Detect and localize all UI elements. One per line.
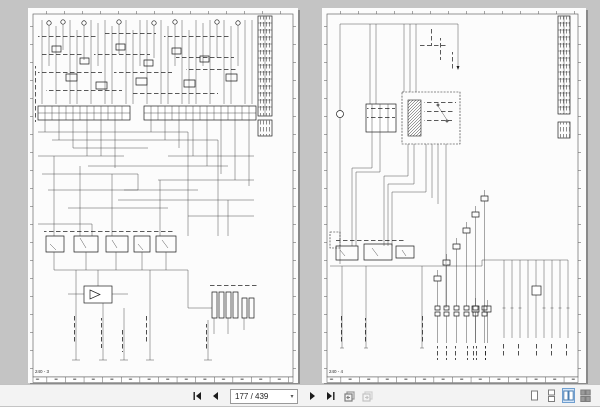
- first-page-button[interactable]: [190, 388, 204, 404]
- next-page-button[interactable]: [306, 388, 320, 404]
- zone-ruler: [327, 377, 578, 383]
- last-page-icon: [325, 390, 337, 402]
- view-mode-facing-continuous[interactable]: [579, 388, 592, 403]
- previous-page-icon: [209, 390, 221, 402]
- title-block: [258, 16, 272, 136]
- right-schematic: 240 - 4: [322, 8, 586, 383]
- relay-row: [44, 230, 176, 252]
- terminal-strip: [38, 106, 256, 120]
- view-mode-continuous[interactable]: [545, 388, 558, 403]
- fuse-staircase: [434, 190, 488, 360]
- page-layout-switcher: [528, 388, 592, 403]
- title-block: [558, 16, 570, 138]
- last-page-button[interactable]: [324, 388, 338, 404]
- zone-ruler: [33, 377, 293, 383]
- previous-view-button[interactable]: [342, 388, 356, 404]
- viewer-toolbar: ▾: [0, 384, 600, 406]
- pdf-page-right: 240 - 4: [322, 8, 586, 383]
- single-page-icon: [529, 389, 540, 402]
- view-mode-facing[interactable]: [562, 388, 575, 403]
- next-view-icon: [361, 390, 374, 403]
- right-drop-group: [502, 260, 570, 358]
- sheet-number-left: 240 - 3: [35, 369, 50, 374]
- next-page-icon: [307, 390, 319, 402]
- page-dropdown-arrow[interactable]: ▾: [287, 393, 297, 400]
- view-mode-single-page[interactable]: [528, 388, 541, 403]
- pdf-page-left: 240 - 3: [28, 8, 298, 383]
- next-view-button[interactable]: [360, 388, 374, 404]
- page-number-input[interactable]: [231, 391, 287, 402]
- horn-component: [68, 286, 128, 360]
- previous-page-button[interactable]: [208, 388, 222, 404]
- viewer-canvas[interactable]: 240 - 3: [0, 0, 600, 384]
- control-unit-box: [402, 92, 460, 144]
- schematic-wires: [330, 24, 570, 360]
- mid-relay-cluster: [330, 232, 414, 260]
- facing-continuous-icon: [580, 389, 591, 402]
- sheet-number-right: 240 - 4: [329, 369, 344, 374]
- first-page-icon: [191, 390, 203, 402]
- relay-box: [366, 104, 396, 132]
- previous-view-icon: [343, 390, 356, 403]
- continuous-icon: [546, 389, 557, 402]
- page-number-box: ▾: [230, 389, 298, 404]
- schematic-wires: [35, 20, 258, 360]
- connector-cluster: [188, 284, 258, 334]
- left-schematic: 240 - 3: [28, 8, 298, 383]
- facing-pages-icon: [563, 389, 574, 402]
- page-navigation: ▾: [190, 385, 374, 407]
